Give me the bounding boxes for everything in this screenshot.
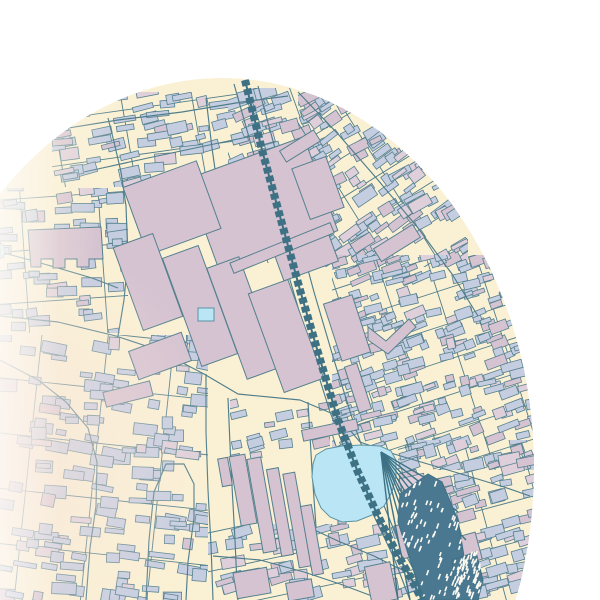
building bbox=[323, 295, 370, 361]
edge-pond-sliver bbox=[0, 242, 5, 258]
building bbox=[233, 567, 271, 599]
small-pool bbox=[198, 308, 214, 321]
building bbox=[364, 562, 397, 600]
map-graphics bbox=[0, 0, 600, 600]
map-viewport bbox=[0, 0, 600, 600]
map-canvas[interactable] bbox=[0, 0, 600, 600]
